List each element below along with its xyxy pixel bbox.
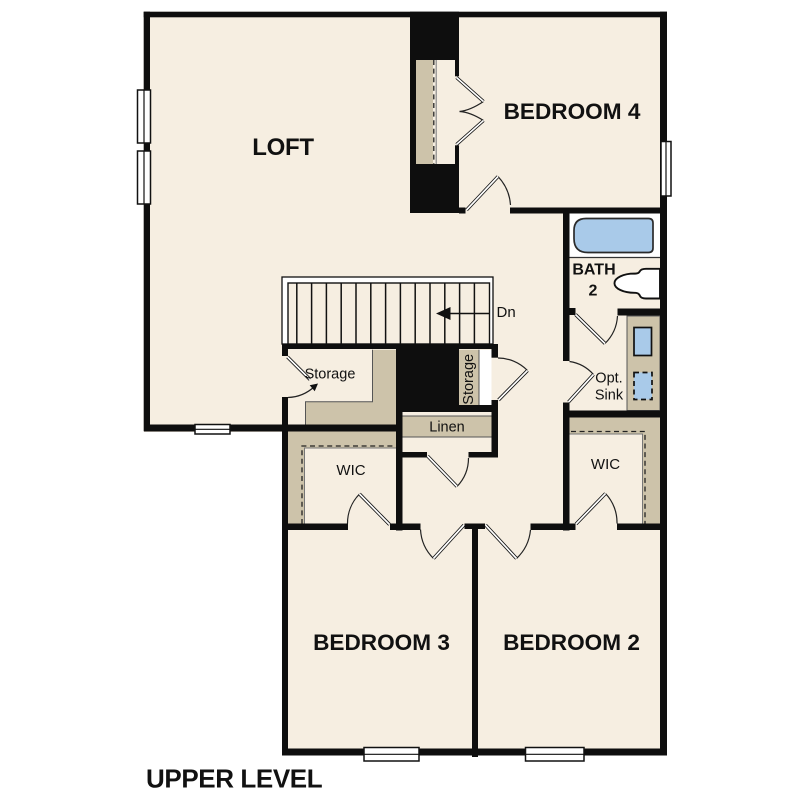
svg-text:Linen: Linen xyxy=(429,419,464,435)
svg-text:BEDROOM 3: BEDROOM 3 xyxy=(313,630,450,655)
svg-text:Dn: Dn xyxy=(497,304,516,321)
svg-text:WIC: WIC xyxy=(336,462,365,479)
svg-text:Storage: Storage xyxy=(305,367,356,383)
svg-text:Storage: Storage xyxy=(461,354,477,405)
svg-text:UPPER LEVEL: UPPER LEVEL xyxy=(146,764,323,794)
svg-text:BEDROOM 4: BEDROOM 4 xyxy=(504,99,641,124)
svg-text:BEDROOM 2: BEDROOM 2 xyxy=(503,630,640,655)
svg-text:Sink: Sink xyxy=(595,388,624,404)
svg-text:WIC: WIC xyxy=(591,456,620,473)
svg-text:Opt.: Opt. xyxy=(595,371,622,387)
svg-text:LOFT: LOFT xyxy=(252,134,314,161)
svg-text:2: 2 xyxy=(589,283,598,300)
svg-text:BATH: BATH xyxy=(572,262,615,279)
